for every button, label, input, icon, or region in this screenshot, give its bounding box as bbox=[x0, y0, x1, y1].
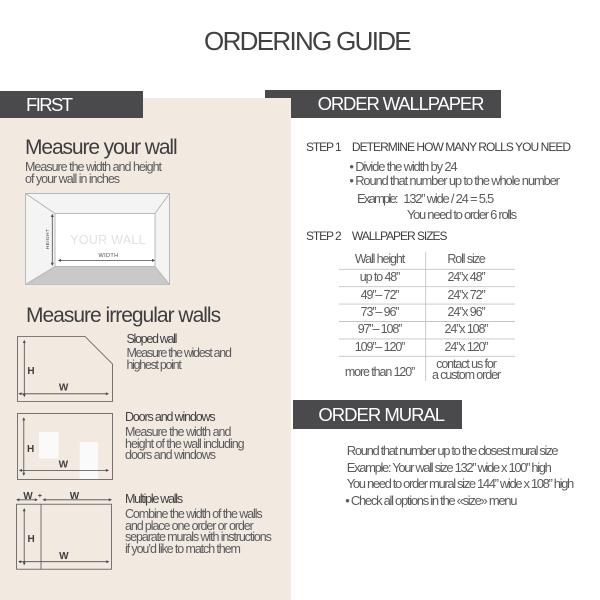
svg-text:W: W bbox=[59, 459, 69, 470]
svg-text:W: W bbox=[23, 491, 33, 502]
svg-text:HEIGHT: HEIGHT bbox=[45, 229, 51, 250]
svg-text:H: H bbox=[27, 534, 34, 545]
svg-text:H: H bbox=[27, 444, 34, 455]
svg-text:W: W bbox=[59, 551, 69, 562]
svg-text:YOUR WALL: YOUR WALL bbox=[70, 233, 146, 247]
svg-text:W: W bbox=[59, 383, 69, 394]
svg-text:H: H bbox=[27, 366, 34, 377]
svg-text:W: W bbox=[70, 491, 80, 502]
svg-text:+: + bbox=[38, 493, 42, 500]
svg-text:WIDTH: WIDTH bbox=[98, 253, 118, 259]
